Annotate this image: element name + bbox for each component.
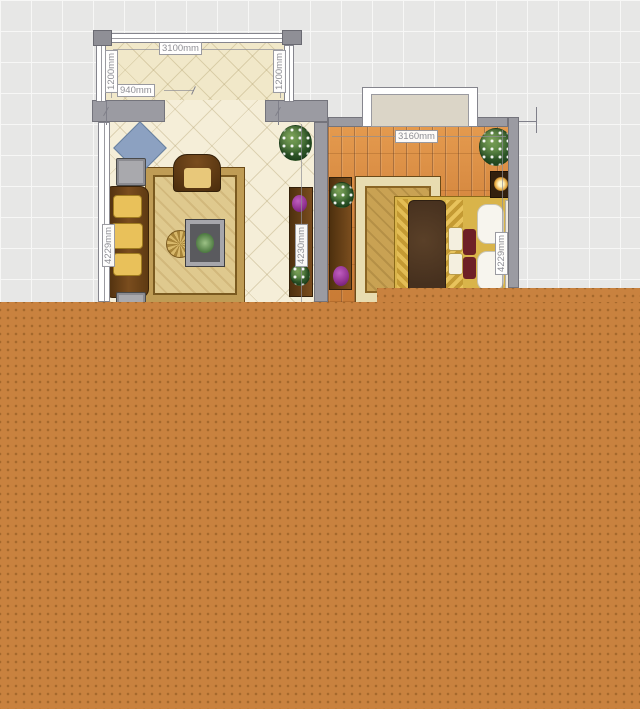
floor-cushion-top[interactable]	[116, 158, 146, 186]
purple-vase-bedroom[interactable]	[333, 266, 349, 286]
coffee-table[interactable]	[186, 220, 224, 266]
bedroom-window-inner	[371, 94, 469, 127]
armchair[interactable]	[173, 154, 221, 192]
dimension-line	[109, 124, 110, 302]
wall-shared[interactable]	[314, 122, 328, 302]
table-centerpiece	[196, 233, 214, 253]
dim-label-balcony-depth-right: 1200mm	[273, 50, 286, 93]
purple-vase-living[interactable]	[292, 195, 307, 212]
orange-fill-region-bottom	[0, 302, 640, 709]
dim-label-balcony-opening: 940mm	[117, 84, 155, 97]
dimension-tick	[536, 107, 537, 133]
balcony-post-right[interactable]	[282, 30, 302, 45]
duvet	[408, 200, 446, 301]
maroon-pillow	[463, 229, 476, 255]
dim-label-balcony-width: 3100mm	[159, 42, 202, 55]
wall-bedroom-right[interactable]	[508, 117, 519, 288]
maroon-pillow	[463, 257, 476, 279]
sofa-pillow	[113, 253, 142, 276]
dim-label-bedroom-right: 4229mm	[495, 232, 508, 275]
sofa-pillow	[111, 223, 143, 249]
dimension-tick	[106, 101, 107, 125]
accent-cushion	[448, 253, 463, 275]
dimension-tick	[278, 101, 279, 125]
dim-label-living-left: 4229mm	[102, 224, 115, 267]
dresser-flowers[interactable]	[330, 182, 354, 208]
dimension-line	[164, 90, 194, 91]
dim-label-bedroom-width: 3160mm	[395, 130, 438, 143]
dim-label-living-right: 4230mm	[295, 224, 308, 267]
wall-balcony-right[interactable]	[265, 100, 328, 122]
potted-plant-living[interactable]	[279, 125, 312, 161]
armchair-cushion	[184, 168, 211, 188]
lamp-icon	[494, 177, 508, 191]
wall-balcony-left[interactable]	[92, 100, 165, 122]
bed-runner-left	[397, 199, 408, 301]
dimension-line	[301, 124, 302, 302]
floorplan-canvas: { "canvas": {"width_px": 640, "height_px…	[0, 0, 640, 709]
dimension-tick	[519, 121, 536, 122]
sofa-pillow	[113, 195, 142, 218]
balcony-post-left[interactable]	[93, 30, 112, 46]
cabinet-flowers[interactable]	[290, 264, 310, 286]
accent-cushion	[448, 227, 463, 251]
